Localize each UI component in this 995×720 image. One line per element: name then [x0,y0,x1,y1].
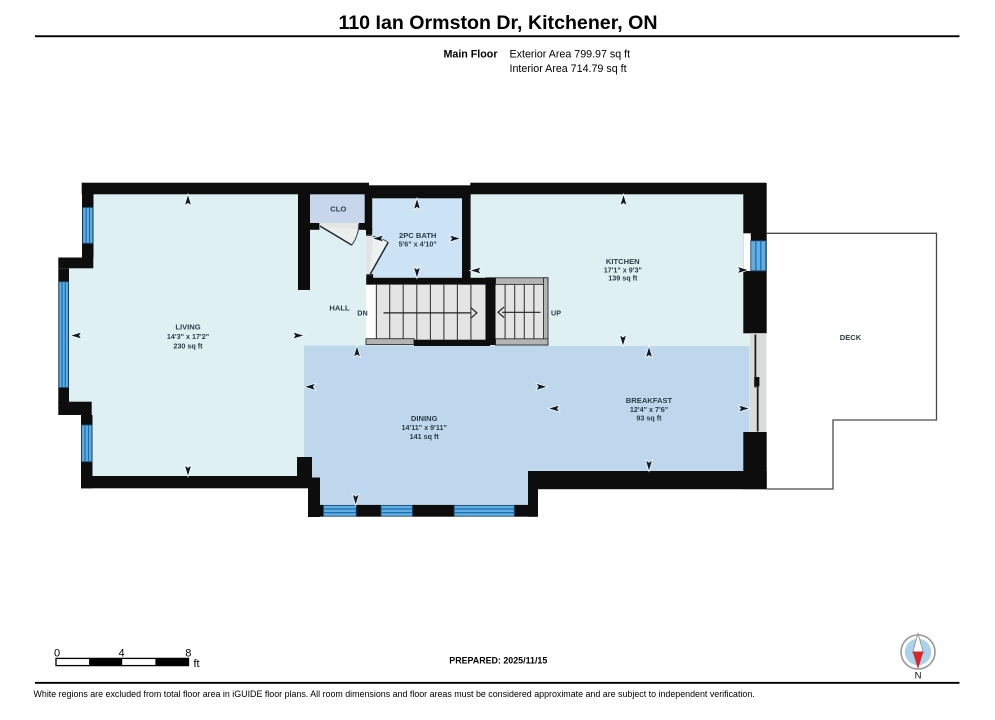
svg-text:110 Ian Ormston Dr, Kitchener,: 110 Ian Ormston Dr, Kitchener, ON [338,12,657,34]
svg-text:5'6" x 4'10": 5'6" x 4'10" [399,240,437,249]
svg-text:14'3" x 17'2": 14'3" x 17'2" [167,332,209,341]
svg-text:UP: UP [551,308,561,317]
svg-text:HALL: HALL [329,304,350,313]
svg-text:Interior Area 714.79 sq ft: Interior Area 714.79 sq ft [510,63,627,75]
svg-text:0: 0 [54,648,60,660]
svg-text:ft: ft [194,658,200,670]
svg-text:8: 8 [185,648,191,660]
svg-text:N: N [915,671,922,682]
svg-text:DN: DN [357,309,367,318]
svg-text:14'11" x 9'11": 14'11" x 9'11" [401,423,446,432]
svg-text:230 sq ft: 230 sq ft [173,341,203,350]
svg-text:139 sq ft: 139 sq ft [608,274,638,283]
svg-text:LIVING: LIVING [175,323,200,332]
svg-text:141 sq ft: 141 sq ft [410,432,440,441]
svg-text:Main Floor: Main Floor [443,49,497,61]
svg-text:93 sq ft: 93 sq ft [636,414,662,423]
svg-text:DINING: DINING [411,414,438,423]
svg-text:BREAKFAST: BREAKFAST [626,396,673,405]
svg-text:DECK: DECK [840,333,862,342]
svg-text:PREPARED: 2025/11/15: PREPARED: 2025/11/15 [449,656,547,666]
svg-text:4: 4 [119,648,125,660]
svg-text:12'4" x 7'6": 12'4" x 7'6" [630,405,668,414]
svg-text:Exterior Area 799.97 sq ft: Exterior Area 799.97 sq ft [510,49,631,61]
svg-text:White regions are excluded fro: White regions are excluded from total fl… [34,689,755,699]
svg-text:CLO: CLO [330,205,346,214]
